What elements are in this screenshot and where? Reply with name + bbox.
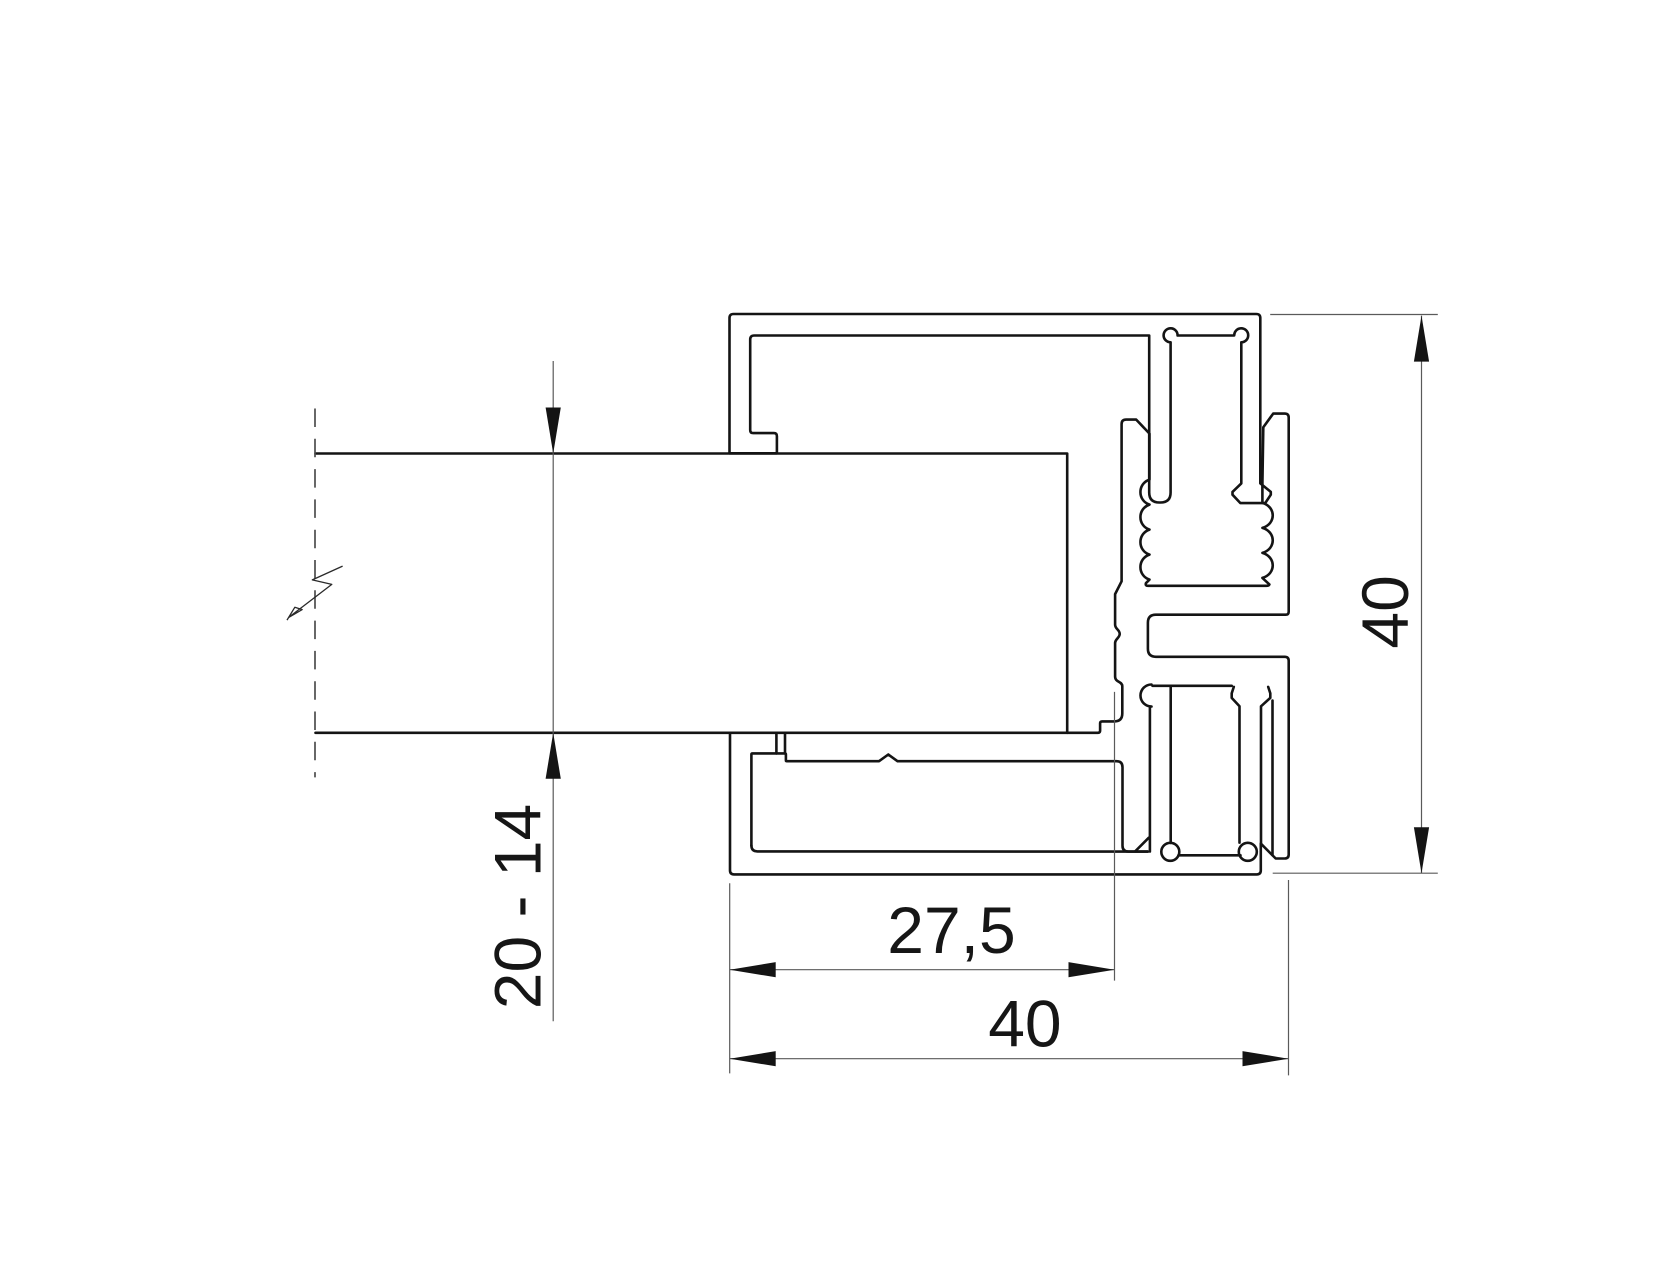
- svg-text:27,5: 27,5: [887, 893, 1015, 967]
- svg-text:40: 40: [1348, 575, 1422, 648]
- svg-text:40: 40: [988, 987, 1061, 1061]
- svg-text:20 - 14: 20 - 14: [481, 804, 555, 1009]
